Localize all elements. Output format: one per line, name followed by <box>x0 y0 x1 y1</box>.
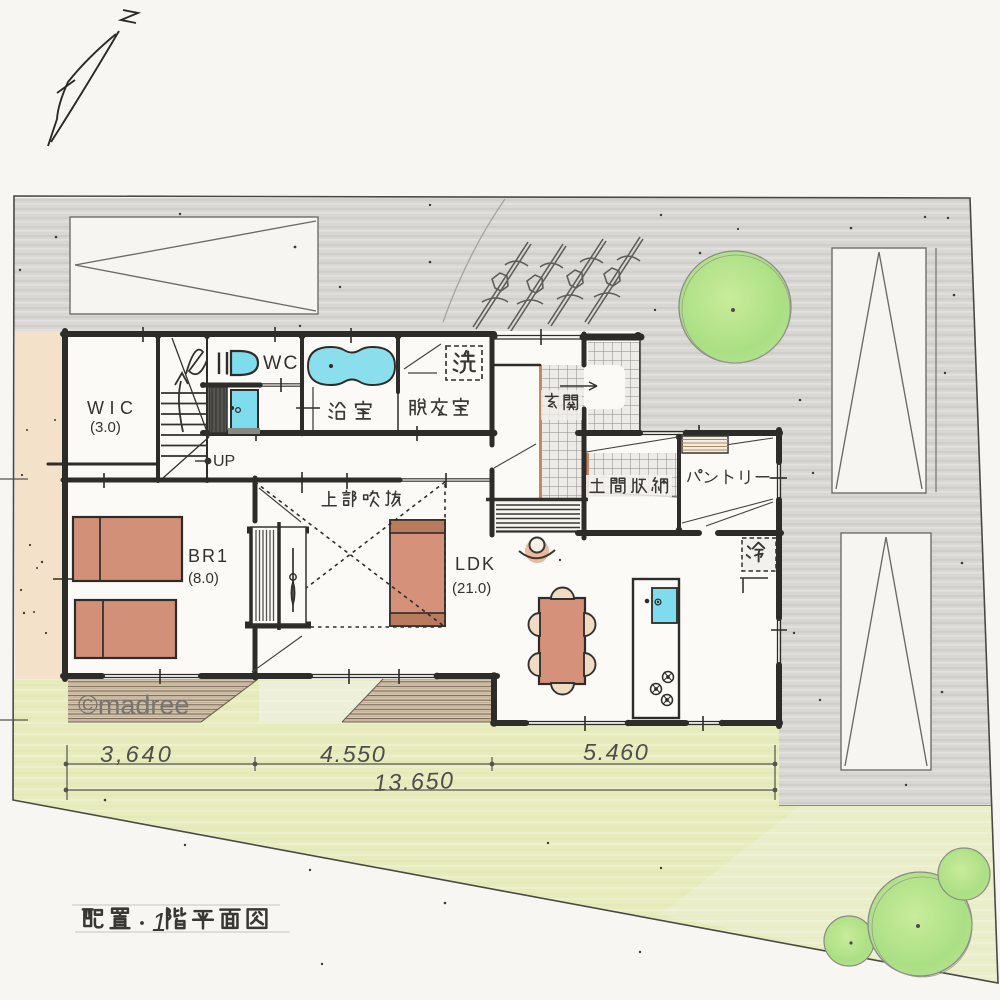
svg-text:(3.0): (3.0) <box>90 419 121 436</box>
svg-text:©madree: ©madree <box>78 690 189 720</box>
svg-text:WC: WC <box>263 352 300 374</box>
svg-text:WIC: WIC <box>87 398 139 418</box>
svg-text:5.460: 5.460 <box>583 739 649 765</box>
svg-text:BR1: BR1 <box>188 546 229 566</box>
svg-text:4.550: 4.550 <box>320 741 386 767</box>
svg-text:13.650: 13.650 <box>373 767 455 796</box>
svg-text:UP: UP <box>213 453 235 470</box>
svg-text:LDK: LDK <box>455 554 496 574</box>
svg-text:(21.0): (21.0) <box>452 580 491 597</box>
svg-text:3,640: 3,640 <box>100 741 174 767</box>
svg-text:(8.0): (8.0) <box>188 570 219 587</box>
